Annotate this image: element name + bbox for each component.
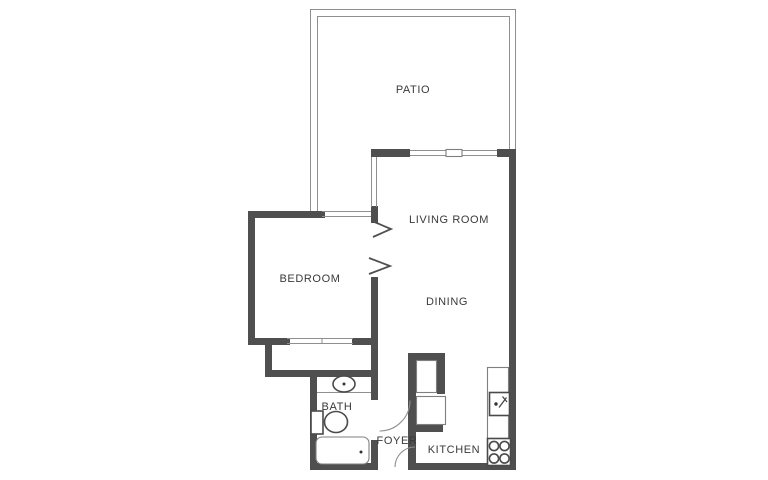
- wall-living-top-left: [371, 149, 410, 157]
- burner-icon: [500, 441, 509, 450]
- patio-outline: [311, 10, 516, 219]
- wall-kitchen-closet-bottom: [408, 425, 443, 432]
- room-label-dining: DINING: [426, 296, 468, 308]
- kitchen-sink-icon: [490, 393, 510, 416]
- walls: [248, 149, 516, 470]
- floor-plan: PATIO LIVING ROOM DINING BEDROOM BATH FO…: [0, 0, 768, 480]
- patio-inner-line: [318, 17, 510, 219]
- wall-kitchen-closet-right: [437, 353, 445, 394]
- wall-divider-middle: [371, 277, 378, 400]
- wall-right: [509, 149, 516, 470]
- bathtub-icon: [316, 437, 369, 464]
- wall-kitchen-closet-left: [408, 353, 416, 470]
- patio-outer-line: [311, 10, 516, 219]
- burner-icon: [489, 454, 498, 463]
- windows: [287, 150, 497, 344]
- sink-drain-dot: [343, 383, 346, 386]
- living-slider-panel: [446, 150, 462, 157]
- room-label-bedroom: BEDROOM: [279, 273, 340, 285]
- bedroom-door-chevron-icon: [369, 258, 390, 274]
- room-label-patio: PATIO: [396, 84, 430, 96]
- burner-icon: [489, 441, 498, 450]
- wall-bedroom-bottom-left: [248, 338, 290, 345]
- toilet-bowl-icon: [325, 412, 348, 433]
- room-label-living-room: LIVING ROOM: [409, 214, 489, 226]
- bathtub-drain-dot: [360, 451, 363, 454]
- room-label-bath: BATH: [322, 401, 353, 413]
- appliance-closet-icon: [417, 361, 437, 393]
- wall-closet-bottom: [265, 370, 372, 377]
- bedroom-door-chevron-icon: [372, 221, 391, 237]
- faucet-dot: [494, 402, 497, 405]
- burner-icon: [500, 454, 509, 463]
- bath-door-swing-arc: [380, 401, 411, 432]
- room-label-kitchen: KITCHEN: [428, 444, 480, 456]
- refrigerator-icon: [417, 397, 446, 425]
- floor-plan-svg: PATIO LIVING ROOM DINING BEDROOM BATH FO…: [0, 0, 768, 480]
- wall-bedroom-left: [248, 211, 255, 345]
- toilet-tank-icon: [311, 411, 323, 434]
- bath-fixtures: [311, 376, 371, 464]
- wall-bedroom-top: [248, 211, 325, 218]
- room-label-foyer: FOYER: [377, 435, 418, 447]
- wall-divider-top-block: [371, 206, 378, 223]
